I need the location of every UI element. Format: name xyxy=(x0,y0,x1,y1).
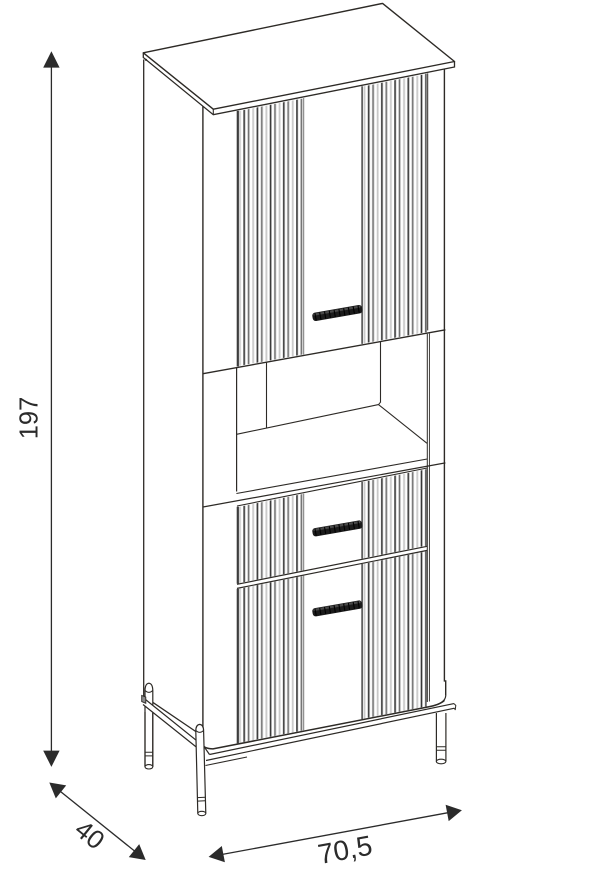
svg-text:197: 197 xyxy=(15,397,43,440)
